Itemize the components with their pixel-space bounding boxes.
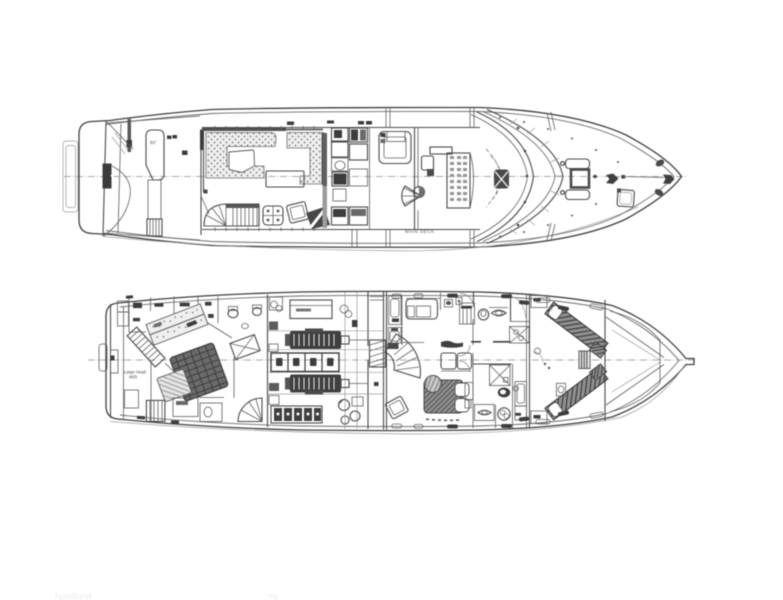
svg-text:82°: 82° [150,140,157,145]
svg-text:76: 76 [268,593,278,600]
svg-text:Nordlund: Nordlund [55,591,92,600]
svg-text:W/D: W/D [129,375,137,380]
svg-text:MAIN DECK: MAIN DECK [405,229,435,234]
